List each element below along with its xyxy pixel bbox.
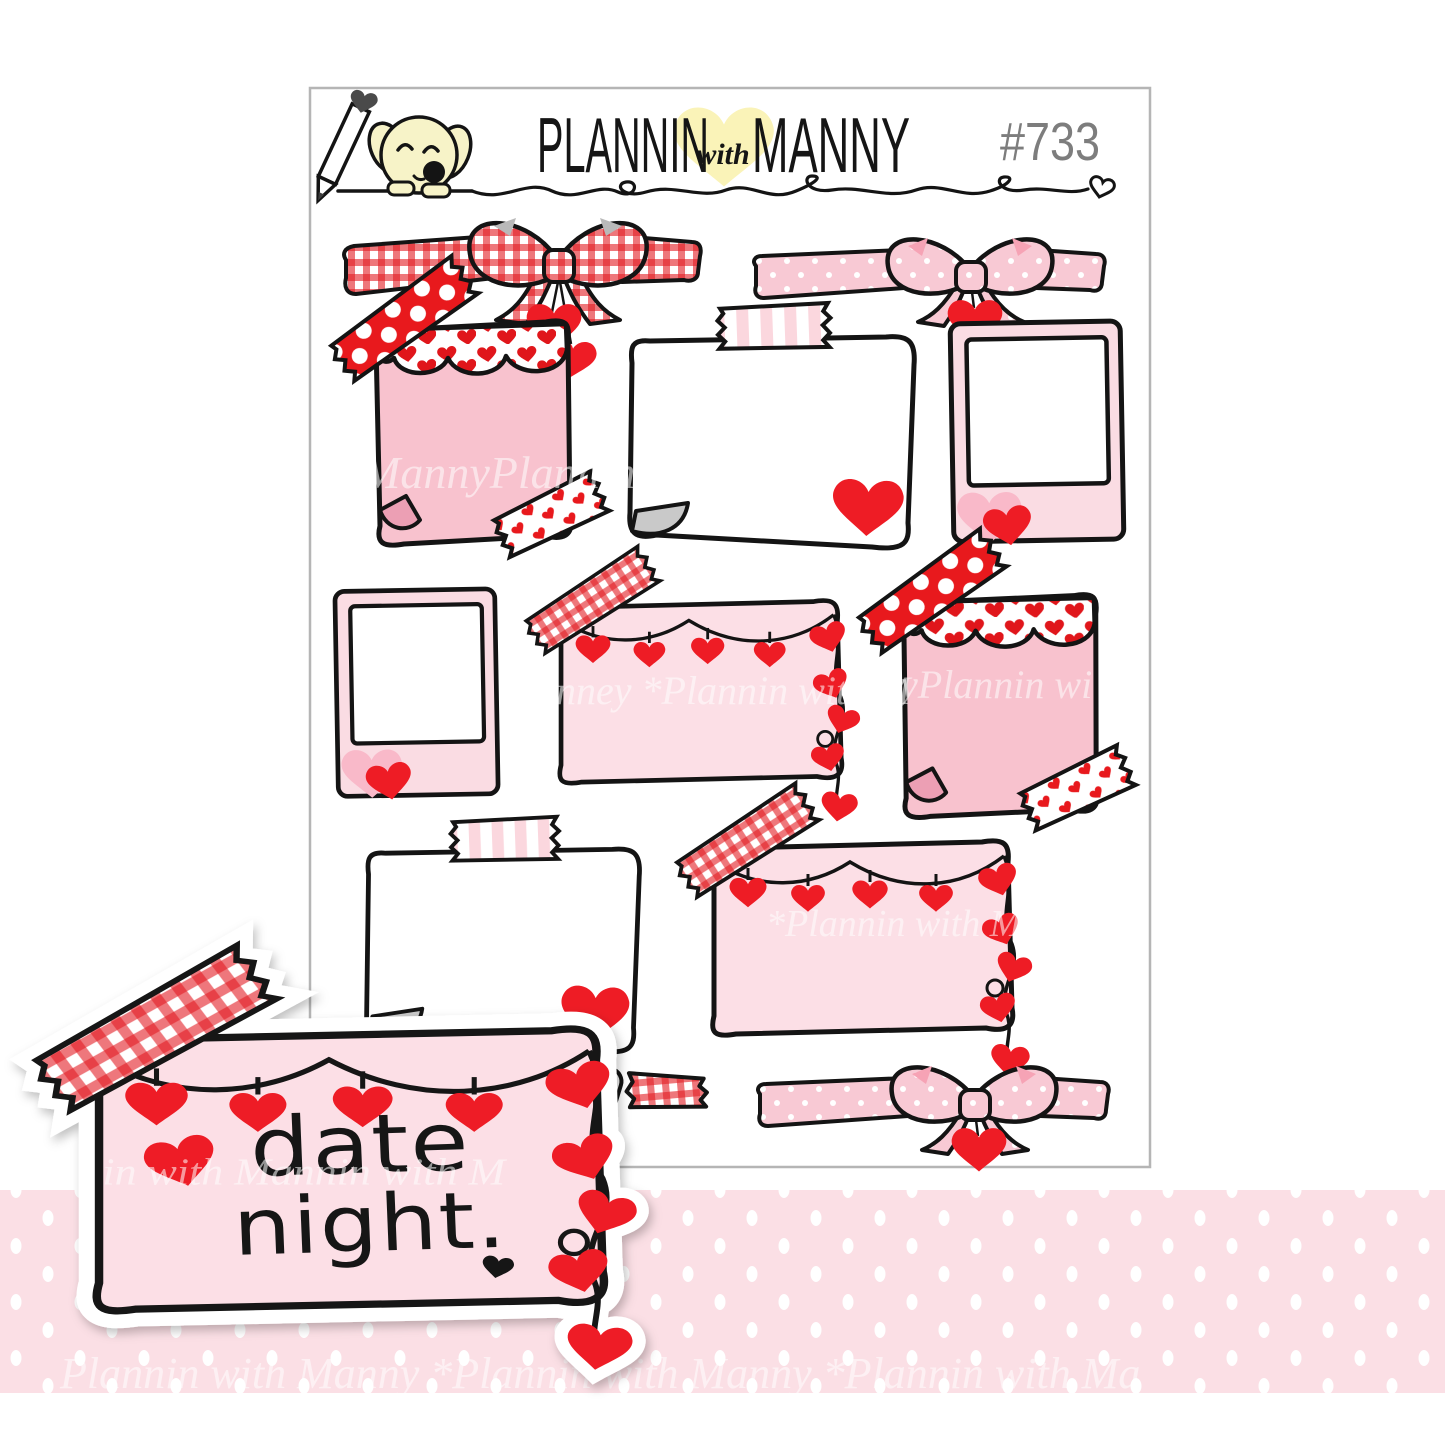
watermark-fragment: nney *Plannin with M: [556, 668, 913, 713]
polaroid-frame-sticker: [950, 321, 1124, 550]
watermark-fragment: *Plannin with M: [766, 903, 1024, 945]
polaroid-frame-sticker: [335, 589, 498, 804]
brand-word-last: MANNY: [752, 101, 910, 189]
taped-white-note-sticker: [630, 303, 915, 548]
brand-word-with: with: [696, 138, 749, 171]
sheet-number: #733: [1000, 112, 1100, 172]
watermark-fragment: MannyPlannin: [361, 447, 635, 498]
product-image: PLANNIN MANNY with #733: [0, 0, 1445, 1445]
watermark-fragment: yPlannin wi: [896, 662, 1092, 707]
brand-word-first: PLANNIN: [537, 101, 709, 189]
sticker-sheet-artwork: PLANNIN MANNY with #733: [0, 0, 1445, 1445]
watermark-fragment: in with Mannin with M: [102, 1151, 507, 1192]
